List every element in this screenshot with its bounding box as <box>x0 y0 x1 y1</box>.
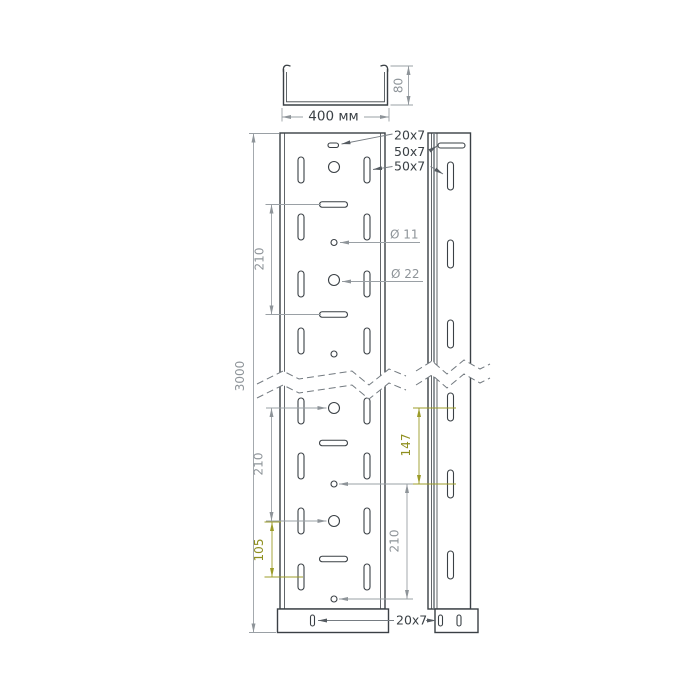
label-slot-side: 50x7 <box>394 159 425 174</box>
label-slot-bottom: 20x7 <box>396 613 427 628</box>
dim-total-length: 3000 <box>233 361 247 392</box>
dim-section-width: 400 мм <box>308 109 358 125</box>
label-hole-large: Ø 22 <box>391 267 420 281</box>
label-hole-small: Ø 11 <box>390 228 419 242</box>
dim-side-slot-pitch: 147 <box>399 434 413 457</box>
label-slot-flange: 50x7 <box>394 144 425 159</box>
dim-pitch-lower-left: 210 <box>252 453 266 476</box>
cross-section-view: 400 мм 80 <box>282 65 413 124</box>
top-small-slot <box>328 143 339 148</box>
technical-drawing: 400 мм 80 <box>0 0 700 700</box>
side-top-slot <box>438 143 465 148</box>
dim-pitch-lower-right: 210 <box>388 530 402 553</box>
connector-slot <box>311 615 315 626</box>
dim-offset-bottom: 105 <box>252 539 266 562</box>
drawing-canvas: 400 мм 80 <box>0 0 700 700</box>
dim-section-height: 80 <box>392 78 406 93</box>
label-slot-top: 20x7 <box>394 128 425 143</box>
dim-pitch-upper: 210 <box>253 248 267 271</box>
